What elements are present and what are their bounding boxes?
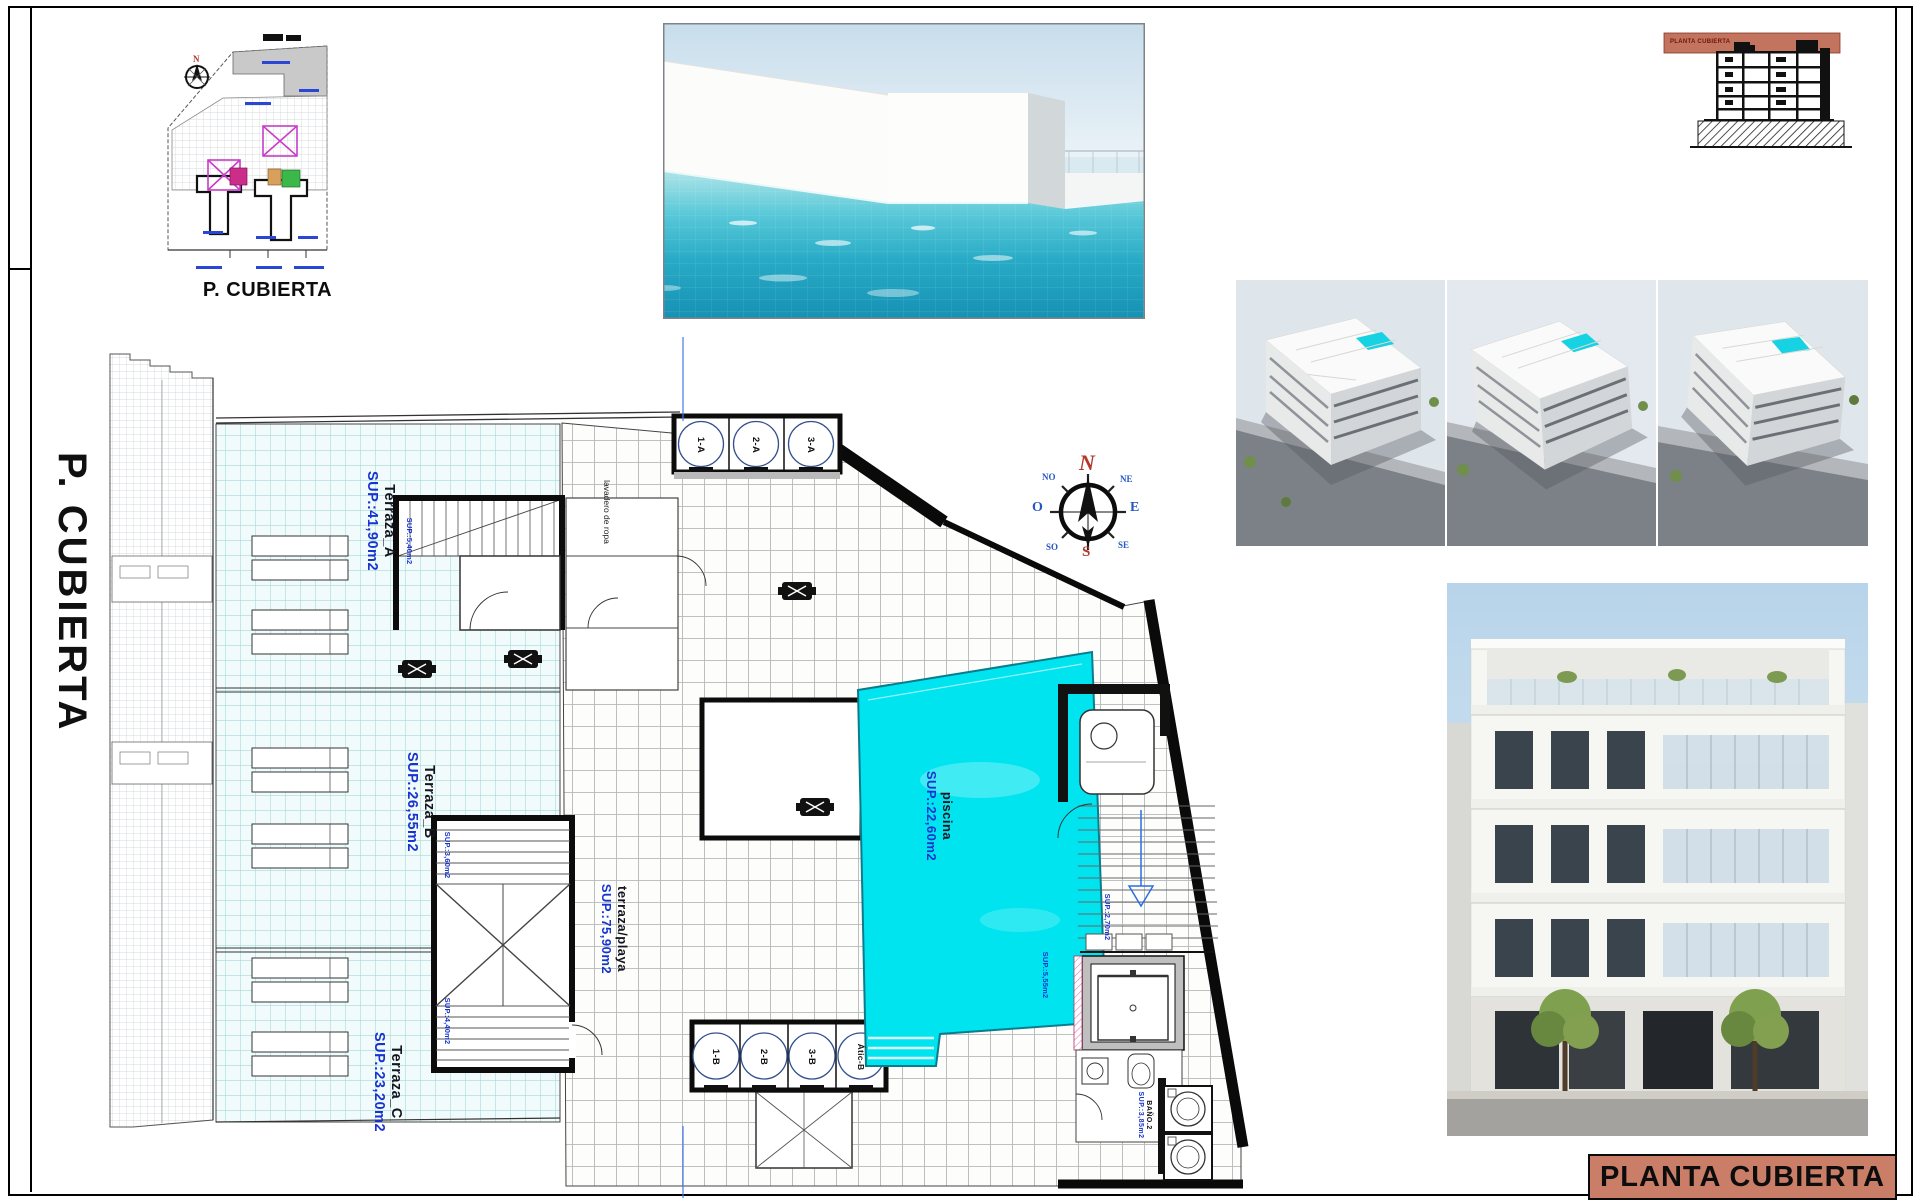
compass-south-label: S <box>1082 544 1090 561</box>
label-laundry: lavadero de ropa <box>602 476 612 548</box>
bano2-name: BAÑO.2 <box>1144 1086 1152 1144</box>
skylight-box <box>702 700 862 838</box>
compass-nw-label: NO <box>1042 472 1056 482</box>
unit-label-aticb: Átic-B <box>856 1034 866 1080</box>
terraza-c-sup: SUP.:23,20m2 <box>369 998 386 1166</box>
label-terraza-b: Terraza_B SUP.:26,55m2 <box>402 716 437 888</box>
aerial-render-2 <box>1447 280 1656 546</box>
piscina-sup: SUP.:22,60m2 <box>924 752 940 880</box>
label-terraza-c: Terraza_C SUP.:23,20m2 <box>369 998 404 1166</box>
key-plan-caption: P. CUBIERTA <box>190 279 345 302</box>
compass-north-label: N <box>1079 450 1095 476</box>
label-stair-top-sup: SUP.:5,40m2 <box>405 512 414 570</box>
aerial-render-1 <box>1236 280 1445 546</box>
compass-icon <box>1050 474 1126 550</box>
terraza-playa-sup: SUP.:75,90m2 <box>599 853 615 1005</box>
compass-se-label: SE <box>1118 540 1129 550</box>
floor-plan-drawing <box>110 337 1243 1198</box>
label-piscina: piscina SUP.:22,60m2 <box>924 752 955 880</box>
compass-west-label: O <box>1032 500 1043 516</box>
terraza-a-name: Terraza_A <box>380 437 397 605</box>
label-stair-bottom-sup-a: SUP.:3,60m2 <box>443 826 452 884</box>
compass-ne-label: NE <box>1120 474 1133 484</box>
compass-sw-label: SO <box>1046 542 1058 552</box>
terraza-b-name: Terraza_B <box>420 716 437 888</box>
keyplan-north-icon <box>184 64 210 88</box>
pool-render-image <box>663 23 1145 319</box>
keyplan-north-label: N <box>193 54 200 64</box>
aerial-render-3 <box>1658 280 1868 546</box>
section-band-label: PLANTA CUBIERTA <box>1670 39 1730 45</box>
terraza-c-name: Terraza_C <box>387 998 404 1166</box>
pool-shape <box>858 652 1106 1066</box>
label-stair-right-sup: SUP.:2,70m2 <box>1103 888 1112 946</box>
bano2-sup: SUP.:3,85m2 <box>1135 1086 1143 1144</box>
unit-label-2a: 2-A <box>750 428 761 462</box>
section-thumbnail-drawing <box>1664 33 1852 147</box>
terraza-b-sup: SUP.:26,55m2 <box>402 716 419 888</box>
facade-render-image <box>1447 583 1868 1136</box>
label-stair-bottom-sup-b: SUP.:4,40m2 <box>443 992 452 1050</box>
label-terraza-a: Terraza_A SUP.:41,90m2 <box>362 437 397 605</box>
key-plan-drawing <box>168 34 327 269</box>
label-terraza-playa: terraza/playa SUP.:75,90m2 <box>599 853 630 1005</box>
sheet-side-title: P. CUBIERTA <box>48 452 96 732</box>
unit-label-1b: 1-B <box>710 1040 721 1074</box>
terraza-a-sup: SUP.:41,90m2 <box>362 437 379 605</box>
x-braced-box <box>756 1092 852 1168</box>
unit-label-1a: 1-A <box>695 428 706 462</box>
compass-east-label: E <box>1130 500 1139 516</box>
unit-label-3a: 3-A <box>805 428 816 462</box>
piscina-name: piscina <box>939 752 955 880</box>
terraza-playa-name: terraza/playa <box>614 853 630 1005</box>
title-block-label: PLANTA CUBIERTA <box>1600 1161 1885 1194</box>
title-block: PLANTA CUBIERTA <box>1588 1154 1897 1200</box>
unit-label-2b: 2-B <box>758 1040 769 1074</box>
label-lift-side-sup: SUP.:5,55m2 <box>1041 946 1050 1004</box>
label-bano2: BAÑO.2 SUP.:3,85m2 <box>1135 1086 1152 1144</box>
unit-label-3b: 3-B <box>806 1040 817 1074</box>
drawing-sheet: P. CUBIERTA P. CUBIERTA PLANTA CUBIERTA … <box>0 0 1920 1200</box>
